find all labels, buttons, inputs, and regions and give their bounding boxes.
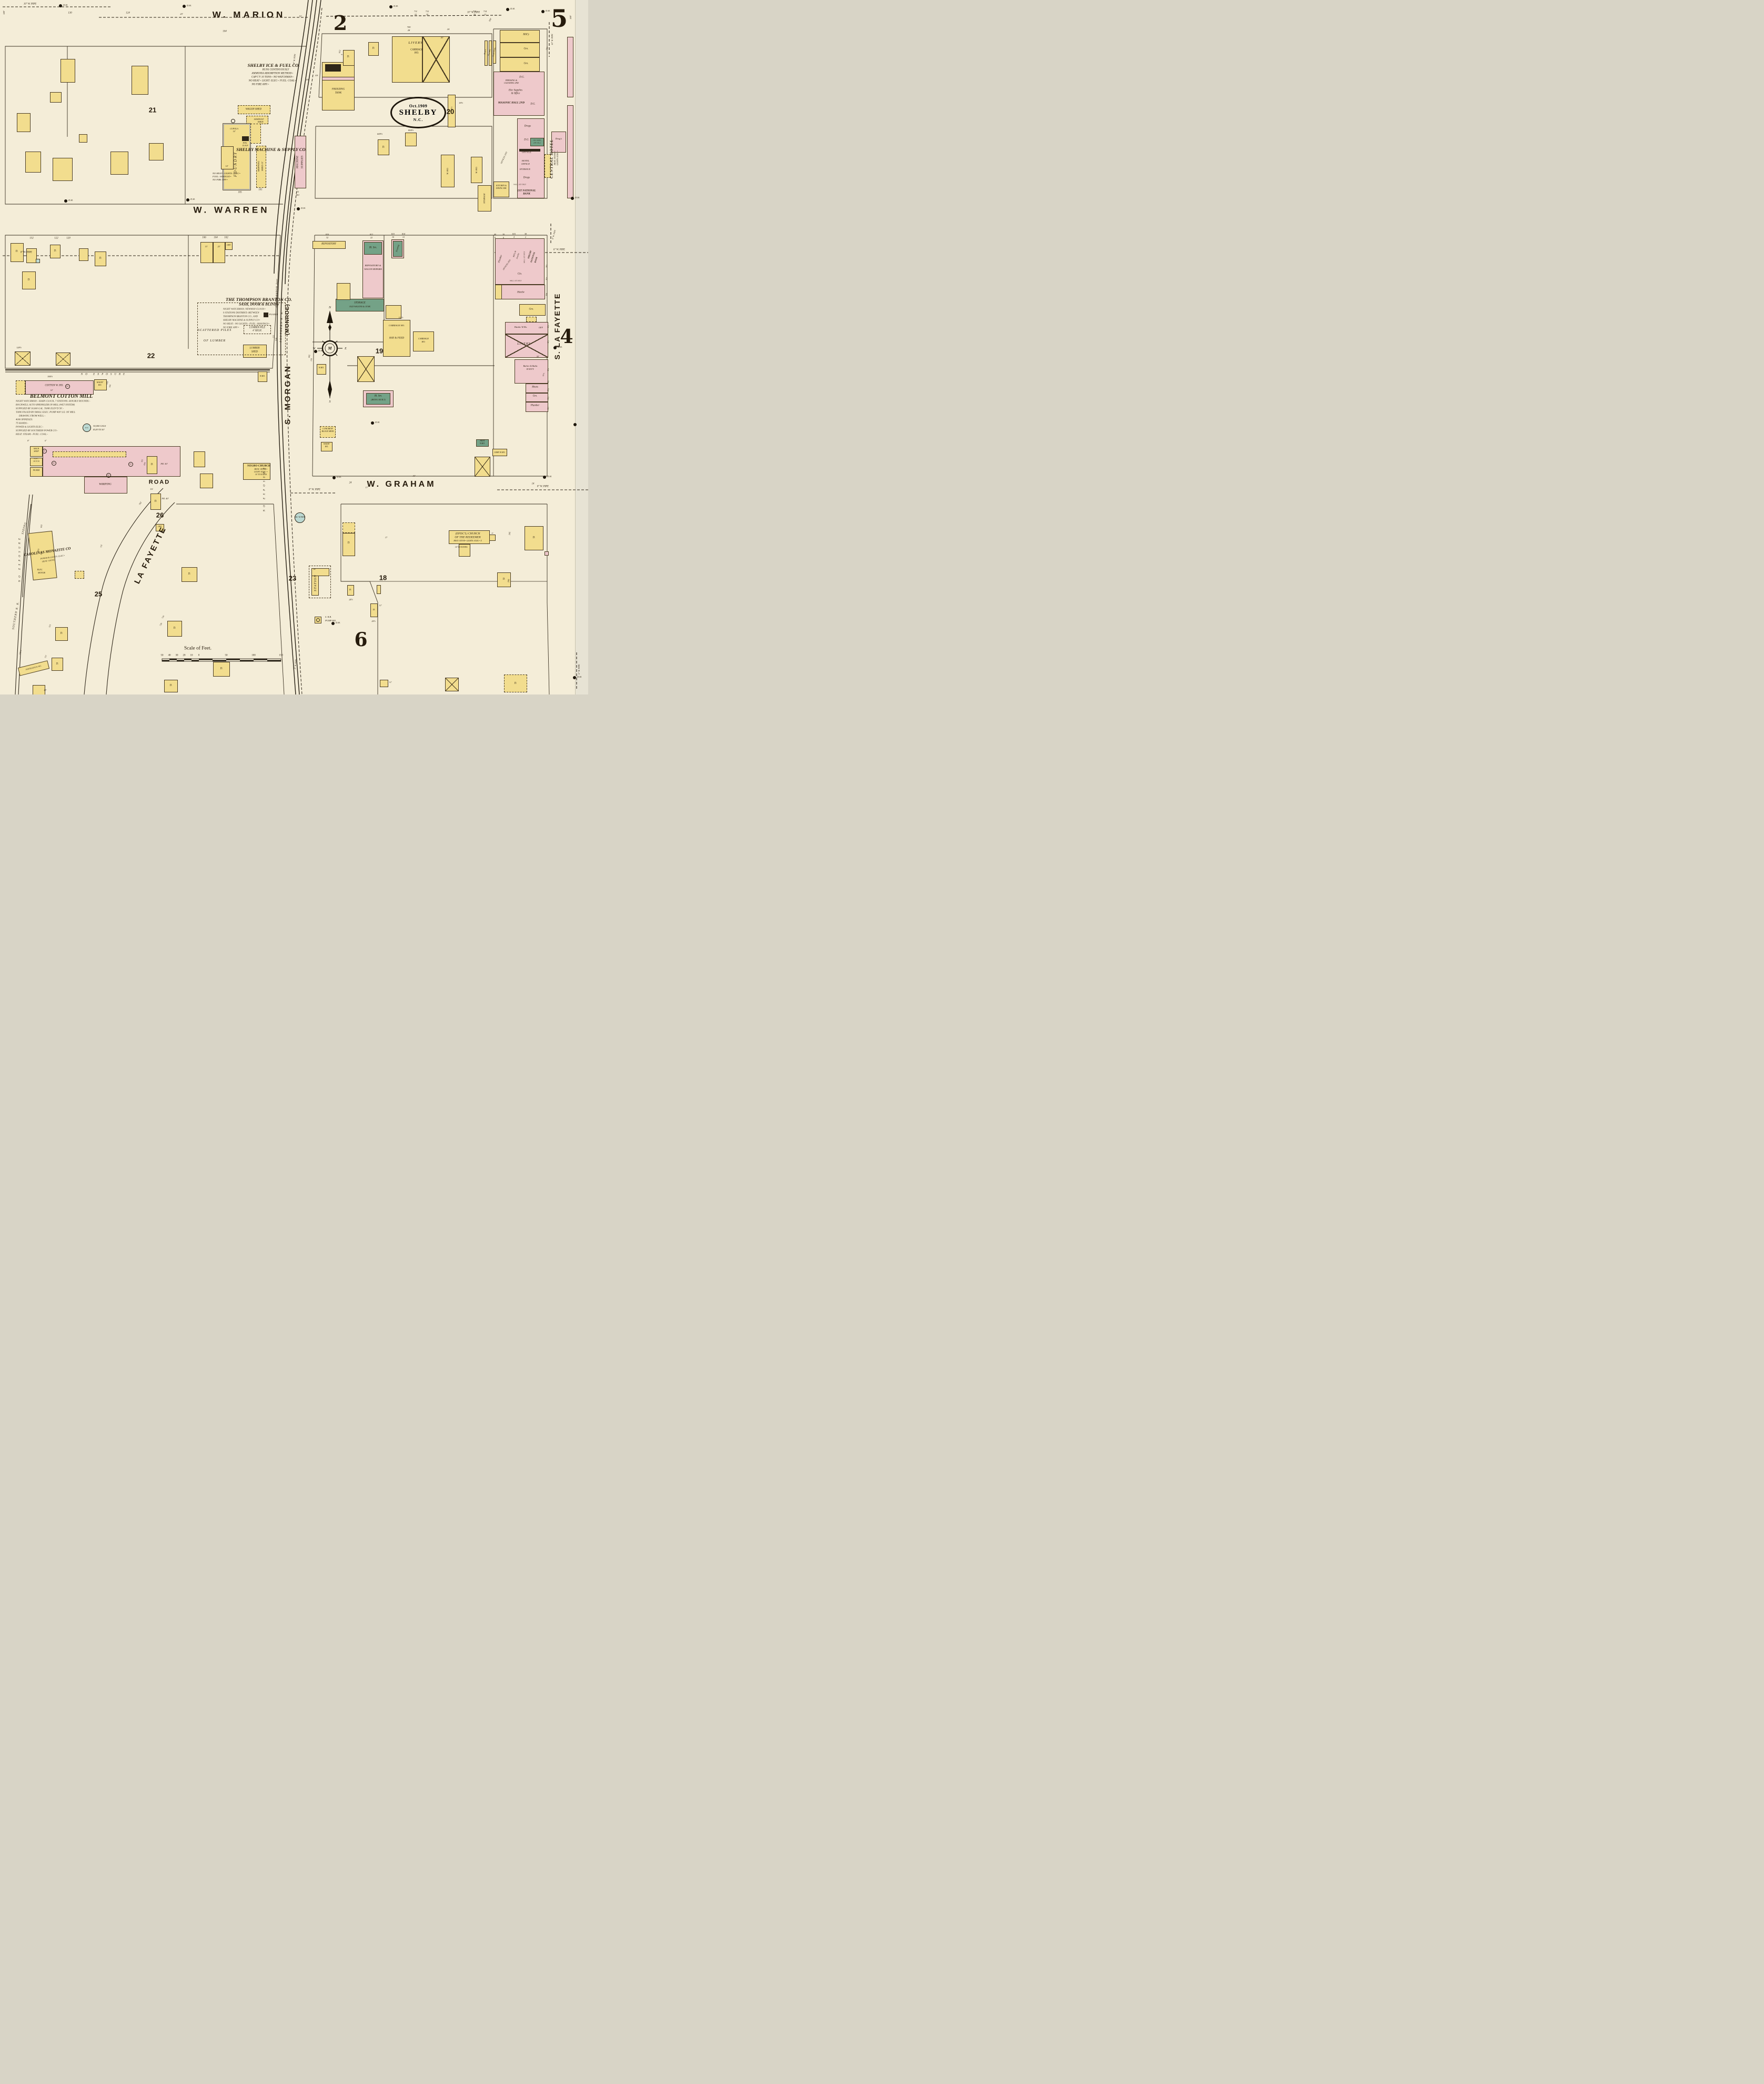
map-label: PUMP HO. <box>325 620 336 622</box>
map-label: 104 <box>214 237 218 239</box>
map-label: 8 <box>495 237 496 239</box>
building <box>194 451 205 467</box>
map-label: 14' TO EAVES. <box>455 546 468 548</box>
map-label: 25' <box>218 246 220 248</box>
map-label: SHED <box>258 121 264 123</box>
road-edge <box>15 495 29 694</box>
bldg-srr-pump-house: S. R.R. <box>325 616 331 619</box>
map-label: BLOCK MFRS <box>322 431 334 433</box>
map-label: 128½ <box>16 347 21 349</box>
building <box>475 457 490 477</box>
map-label: 40 <box>494 234 496 236</box>
map-label: NO HEAT:- NO LIGHTS:- FUEL: SHAVINGS= <box>223 323 270 326</box>
building <box>33 685 45 694</box>
map-label: 205 <box>508 532 511 536</box>
map-label: OFF. <box>227 245 231 247</box>
block-25: 25 <box>95 591 102 598</box>
building <box>132 66 148 95</box>
map-label: Hardw <box>517 291 525 294</box>
map-label: D. <box>16 250 18 253</box>
hydrant-dot <box>314 350 317 353</box>
map-label: 4 <box>513 236 515 238</box>
map-label: 111 <box>150 488 153 491</box>
bldg-belmont-cotton-mill: BELMONT COTTON MILL <box>30 394 93 399</box>
map-label: W.HO. <box>260 376 265 378</box>
building <box>53 451 126 457</box>
map-label: RUNS CONTINUOUSLY <box>263 69 289 72</box>
scale-tick: 150 <box>279 655 283 657</box>
map-label: SCATTERED PILES <box>198 329 232 332</box>
building <box>56 353 70 366</box>
hydrant-dot <box>506 8 509 11</box>
map-label: D. <box>372 47 375 50</box>
hydrant-dot <box>543 476 546 479</box>
bldg-episcopal-church: (EPISC'L) CHURCH <box>456 532 480 536</box>
bldg-negro-church: NEGRO CHURCH <box>247 465 270 468</box>
building <box>342 522 355 533</box>
map-label: NO HEAT= LIGHT: ELEC= FUEL: COAL= <box>249 80 297 83</box>
map-label: D. <box>174 627 176 630</box>
block-26: 26 <box>156 512 164 519</box>
building <box>495 285 502 299</box>
building <box>567 105 573 198</box>
hydrant-dot <box>332 476 336 479</box>
map-label: Bl. Sm. <box>369 247 377 249</box>
map-label: 14' <box>51 390 53 392</box>
hydrant-dot <box>64 199 67 203</box>
hydrant-label: D.H. <box>190 198 195 201</box>
building <box>357 356 375 382</box>
hydrant-dot <box>389 5 392 8</box>
map-label: SHOP <box>34 451 38 453</box>
building <box>25 152 41 173</box>
map-label: DINING RM. <box>496 188 507 190</box>
map-label: D. <box>515 682 517 685</box>
map-label: 14' <box>226 165 228 167</box>
map-label: 8" <box>27 440 29 442</box>
auto-sprinkler-mark: AS <box>106 473 111 478</box>
map-label: 9 STATIONS DISTRIB'D. BETWEEN <box>223 312 259 315</box>
map-label: 24½ <box>349 599 352 601</box>
map-label: LUMBER <box>250 348 260 350</box>
map-label: 115½ <box>399 317 404 319</box>
map-label: BANK <box>523 193 530 196</box>
building <box>380 680 388 687</box>
map-label: 12' <box>389 682 392 684</box>
building <box>264 313 268 317</box>
map-label: D. <box>382 146 385 149</box>
map-label: OLD WAGONS & JUNK <box>349 306 370 308</box>
map-label: 12 <box>484 14 486 16</box>
map-label: 716 <box>162 615 165 619</box>
map-label: 24⅓ <box>371 620 375 622</box>
map-label: SHED 15' <box>261 162 264 171</box>
map-label: W. HO. <box>447 167 449 174</box>
building <box>79 134 87 143</box>
map-label: SUPPLIES <box>301 156 304 168</box>
map-label: 720 <box>159 622 163 626</box>
building <box>110 152 128 175</box>
map-label: 714 <box>483 11 487 13</box>
building <box>242 136 249 141</box>
map-label: 33 <box>297 191 299 193</box>
hydrant-label: D.H. <box>337 476 341 479</box>
map-label: 6" W. PIPE <box>578 664 580 674</box>
scale-tick: 50 <box>161 655 164 657</box>
map-label: D. <box>151 464 154 466</box>
hydrant-label: D.H. <box>336 622 340 625</box>
map-label: D. <box>61 632 63 635</box>
map-label: 712 <box>426 11 429 13</box>
map-label: 18½ <box>459 102 463 105</box>
map-label: 22 <box>415 14 417 16</box>
map-label: Meats <box>532 387 538 389</box>
map-label: SUPPLIED BY 30,000 GAL. TANK ELEV'D 50':… <box>16 408 64 410</box>
water-tank-circle: W-T. <box>83 424 91 432</box>
hydrant-label: D.H. <box>187 5 191 7</box>
map-label: NO FIRE APP.= <box>213 179 228 181</box>
map-label: OIL W.HO. <box>533 139 541 142</box>
map-label: 115 <box>548 340 550 344</box>
map-label: Gro. <box>523 63 528 65</box>
map-label: 801 <box>296 194 299 196</box>
map-label: TANK FILLED BY SMALL ELEC. PUMP 400' S.E… <box>16 411 75 414</box>
map-label: 804½ <box>408 129 414 132</box>
building <box>53 158 73 181</box>
street-w-graham: W. GRAHAM <box>367 480 436 489</box>
building <box>377 585 381 594</box>
svg-text:M: M <box>327 346 332 351</box>
block-23: 23 <box>289 575 296 582</box>
building <box>200 474 213 488</box>
map-label: 711 <box>414 11 417 13</box>
map-label: W.HO. <box>480 443 485 445</box>
map-label: 20' <box>180 13 183 16</box>
building <box>422 36 450 83</box>
auto-sprinkler-mark: AS <box>52 461 56 466</box>
map-label: 24 <box>447 28 450 31</box>
scale-tick: 20 <box>183 655 186 657</box>
map-label: FREEZING <box>332 88 345 90</box>
street-road: ROAD <box>149 480 170 486</box>
map-label: Gro. <box>533 396 538 398</box>
street-la-fayette: LA FAYETTE <box>133 525 168 585</box>
map-label: & Office <box>511 93 520 96</box>
map-label: 8" W. PIPE <box>21 252 32 255</box>
map-label: 124 <box>126 12 130 15</box>
bldg-central-hotel: CENTRAL HOTEL <box>549 139 553 179</box>
map-label: NIGHT WATCHMAN; NEWMAN CLOCK= <box>223 308 266 311</box>
building <box>489 535 496 541</box>
map-label: D. <box>533 537 536 539</box>
map-label: D. <box>348 542 350 545</box>
hydrant-dot <box>186 198 189 202</box>
map-label: HAY & FEED <box>389 337 404 340</box>
map-label: 121 <box>548 380 550 384</box>
map-label: HO. <box>421 341 425 343</box>
street-w-warren: W. WARREN <box>193 206 269 215</box>
map-label: 20 <box>426 14 428 16</box>
map-label: NO EXPOSURE <box>19 536 22 582</box>
adjacent-sheet-6: 6 <box>354 630 367 649</box>
map-label: Drugs <box>525 125 531 128</box>
map-label: DRAWING FROM WELL:- <box>19 415 45 418</box>
map-label: Hardw W.Ho. <box>515 326 528 329</box>
map-label: 130 <box>68 12 72 15</box>
map-label: PLANER <box>269 314 278 316</box>
map-label: STORAGE <box>354 302 366 305</box>
map-label: NO FIRE APP.= <box>251 84 269 86</box>
map-label: D. <box>373 609 375 611</box>
map-label: 723 <box>48 625 51 628</box>
map-label: WALL 1ST ONLY <box>513 184 526 185</box>
map-label: 612 <box>338 50 341 54</box>
map-label: 100' <box>488 18 492 22</box>
building <box>75 571 84 579</box>
map-label: 104 <box>223 31 227 33</box>
map-label: POWER & LIGHTS ELEC:- <box>16 426 43 429</box>
map-label: D. <box>347 56 350 58</box>
map-label: 16' <box>299 15 301 17</box>
bldg-livery-block20: LIVERY <box>408 42 422 45</box>
scale-tick: 0 <box>198 655 200 657</box>
map-label: 101 <box>258 189 262 192</box>
map-label: 120 <box>310 358 313 362</box>
map-label: 30' <box>440 37 443 39</box>
map-label: 102 <box>224 237 228 239</box>
map-label: 16' TO EAVES <box>255 474 267 476</box>
map-label: IN B'S'T. <box>527 368 535 370</box>
map-label: 6" <box>45 440 47 442</box>
bldg-shelby-machine-supply: SHELBY MACHINE & SUPPLY CO. <box>236 147 306 152</box>
map-label: 8" W. PIPE <box>537 486 549 489</box>
building <box>43 446 180 477</box>
map-label: CARRIAGE <box>418 338 429 340</box>
map-label: SASH, DOOR & BLINDS <box>239 303 279 307</box>
map-label: 113 <box>548 325 550 328</box>
street-monroe: (MONROE) <box>285 304 290 335</box>
hydrant-dot <box>183 5 186 8</box>
bldg-thompson-branton: THE THOMPSON BRANTON CO. <box>226 297 292 302</box>
title-state: N.C. <box>414 117 424 122</box>
map-label: 106 <box>202 237 206 239</box>
map-label: 105 <box>546 265 549 268</box>
map-label: WALL 1ST ONLY <box>510 280 521 281</box>
map-label: 15 H.P. <box>242 145 248 147</box>
map-label: D. <box>28 279 31 281</box>
map-label: 8" W. PIPE <box>552 230 557 240</box>
map-label: 6" W. PIPE <box>553 249 565 252</box>
bldg-cotton-warehouse: COTTON W. HO. <box>45 385 63 387</box>
map-label: HO. <box>415 52 419 55</box>
bldg-livery-block4: LIVERY <box>517 343 531 346</box>
railroad-siding: SIDING <box>22 522 27 535</box>
map-label: D. <box>56 663 59 666</box>
map-label: 8" W. PIPE <box>294 659 297 669</box>
building <box>149 143 164 160</box>
map-label: 123 <box>548 388 550 391</box>
bldg-repository: REPOSITORY <box>321 244 336 246</box>
building <box>322 77 355 80</box>
map-label: Barber & Baths <box>523 365 538 367</box>
map-label: W. HO. <box>476 166 478 173</box>
compass-rose: MNSWE <box>313 306 347 404</box>
hydrant-label: D.H. <box>63 4 68 7</box>
building <box>250 124 261 144</box>
map-label: HO. <box>98 384 102 386</box>
map-label: Clo. <box>518 273 522 276</box>
block-19: 19 <box>376 348 383 355</box>
scale-tick: 100 <box>251 655 256 657</box>
map-label: F.P. <box>315 75 318 77</box>
building <box>505 334 548 358</box>
map-label: 631 <box>40 525 43 528</box>
lot-line <box>274 504 284 694</box>
scale-tick: 40 <box>168 655 171 657</box>
map-label: 100' <box>546 46 549 51</box>
block-21: 21 <box>149 107 156 114</box>
map-label: 17' <box>365 487 368 489</box>
map-label: TANK <box>335 92 342 94</box>
map-label: CLEANING 2ND <box>504 82 519 84</box>
map-label: 28 <box>408 29 410 32</box>
map-label: 38 <box>525 233 527 235</box>
building <box>495 238 545 285</box>
hydrant-label: D.H. <box>510 8 515 11</box>
map-label: 702 <box>139 501 143 506</box>
map-label: 106½ <box>47 376 53 378</box>
map-label: ELEC. <box>37 569 43 571</box>
map-label: D. <box>170 684 173 687</box>
hydrant-label: D.H. <box>68 199 73 202</box>
map-label: MACHINE <box>296 156 299 168</box>
map-label: 810 <box>326 234 329 236</box>
map-label: 814 <box>402 233 405 235</box>
map-label: 100' <box>3 11 5 14</box>
map-label: F.P. <box>306 79 309 82</box>
title-date: Oct.1909 <box>409 104 427 108</box>
map-label: ROCKWELL AUTO SPRINKLERS IN MILL (WET SY… <box>16 404 75 407</box>
map-label: 15' <box>205 246 208 248</box>
map-label: Gro. <box>523 48 528 51</box>
map-label: HEAT: STOVE= LIGHTS: ELEC= X <box>453 540 481 542</box>
map-label: Mill'y <box>523 34 529 36</box>
map-label: SHELBY MACHINE & SUPPLY CO= <box>223 319 260 322</box>
map-label: (BEING BUILT) <box>371 399 386 401</box>
map-label: 107 <box>546 277 549 280</box>
map-label: HOTEL <box>522 160 529 163</box>
map-label: Drug's <box>556 138 562 140</box>
building <box>445 678 459 691</box>
hydrant-dot <box>573 676 576 679</box>
sanborn-map-shelby-nc: MNSWE W-T.ASASASASASD.H.D.H.D.H.D.H.D.H.… <box>0 0 588 694</box>
map-label: WALL 1ST ONLY <box>523 251 525 263</box>
building <box>337 283 350 300</box>
map-label: ENTRANCE <box>520 168 530 170</box>
map-label: 105 <box>238 192 241 195</box>
map-label: D.G. <box>519 76 525 79</box>
map-label: 119 <box>548 368 550 371</box>
map-label: ELEV'D 50' <box>93 429 105 431</box>
hydrant-label: D.H. <box>575 197 580 199</box>
map-label: 22 <box>370 237 372 239</box>
map-label: 30,000 GALS <box>93 425 106 428</box>
map-label: 132 <box>29 237 34 240</box>
scale-bar <box>162 659 281 661</box>
map-label: OFFICE <box>522 152 531 154</box>
map-label: 4000 SPINDLES: <box>16 419 33 421</box>
map-label: HO. <box>325 446 328 448</box>
building <box>16 380 25 395</box>
map-label: (IN CEL.) <box>533 142 540 144</box>
building <box>15 351 31 366</box>
building <box>325 64 341 72</box>
building <box>567 37 573 97</box>
map-label: 122 <box>54 237 58 240</box>
map-circle <box>316 618 320 622</box>
scale-tick: 30 <box>176 655 178 657</box>
lot-line <box>313 235 315 476</box>
svg-text:N: N <box>328 306 331 309</box>
building <box>25 380 94 395</box>
map-label: 2 <box>525 236 526 238</box>
map-label: Gro. <box>529 308 533 311</box>
scale-tick: 50 <box>225 655 228 657</box>
hydrant-label: D.H. <box>394 5 398 8</box>
map-label: 106 <box>109 385 112 388</box>
map-label: ELEC. <box>34 458 38 459</box>
hydrant-dot <box>297 207 300 210</box>
map-label: WARPING <box>99 483 112 486</box>
map-label: 14 <box>532 484 535 486</box>
map-label: D.G. <box>524 139 529 142</box>
map-label: Bl. Sm. <box>375 395 382 398</box>
map-label: 32 <box>326 237 328 239</box>
block-22: 22 <box>147 353 155 359</box>
map-label: 711 <box>100 545 103 548</box>
map-label: LIGHTS: ELEC.= <box>557 150 559 165</box>
map-label: CAP'C'Y 10 TONS= NO WATCHMAN= <box>251 76 294 79</box>
map-label: 17 <box>385 537 387 539</box>
map-label: Drugs <box>523 177 530 179</box>
map-label: OF LUMBER <box>204 339 226 343</box>
hydrant-dot <box>371 421 374 425</box>
lot-line <box>315 126 492 198</box>
building <box>17 113 31 132</box>
hydrant-label: D.H. <box>546 10 550 13</box>
map-label: 12 <box>402 236 405 238</box>
map-label: AMMONIA ABSORPTION METHOD= <box>251 73 293 75</box>
map-label: SUPPLIED BY SOUTHERN POWER CO:- <box>16 430 58 432</box>
map-label: 10" W. PIPE <box>467 12 480 15</box>
bldg-masonic-hall: MASONIC HALL 2ND <box>498 102 525 104</box>
hydrant-dot <box>541 10 545 13</box>
building <box>26 248 37 263</box>
map-label: OF THE REDEEMER <box>455 536 480 539</box>
map-label: D.G. <box>530 104 535 106</box>
map-label: 16 <box>392 236 394 238</box>
title-oval: Oct.1909 SHELBY N.C. <box>390 97 446 128</box>
auto-sprinkler-mark: AS <box>128 462 133 467</box>
map-label: 35' <box>491 532 493 534</box>
map-label: Plumber <box>531 405 540 408</box>
map-label: 812 <box>370 234 373 236</box>
hydrant-label: D.H. <box>577 676 582 679</box>
map-circle <box>231 119 235 123</box>
map-label: REPOSITORY & <box>365 265 381 267</box>
map-label: 125 <box>548 397 550 400</box>
svg-text:E: E <box>344 347 347 350</box>
